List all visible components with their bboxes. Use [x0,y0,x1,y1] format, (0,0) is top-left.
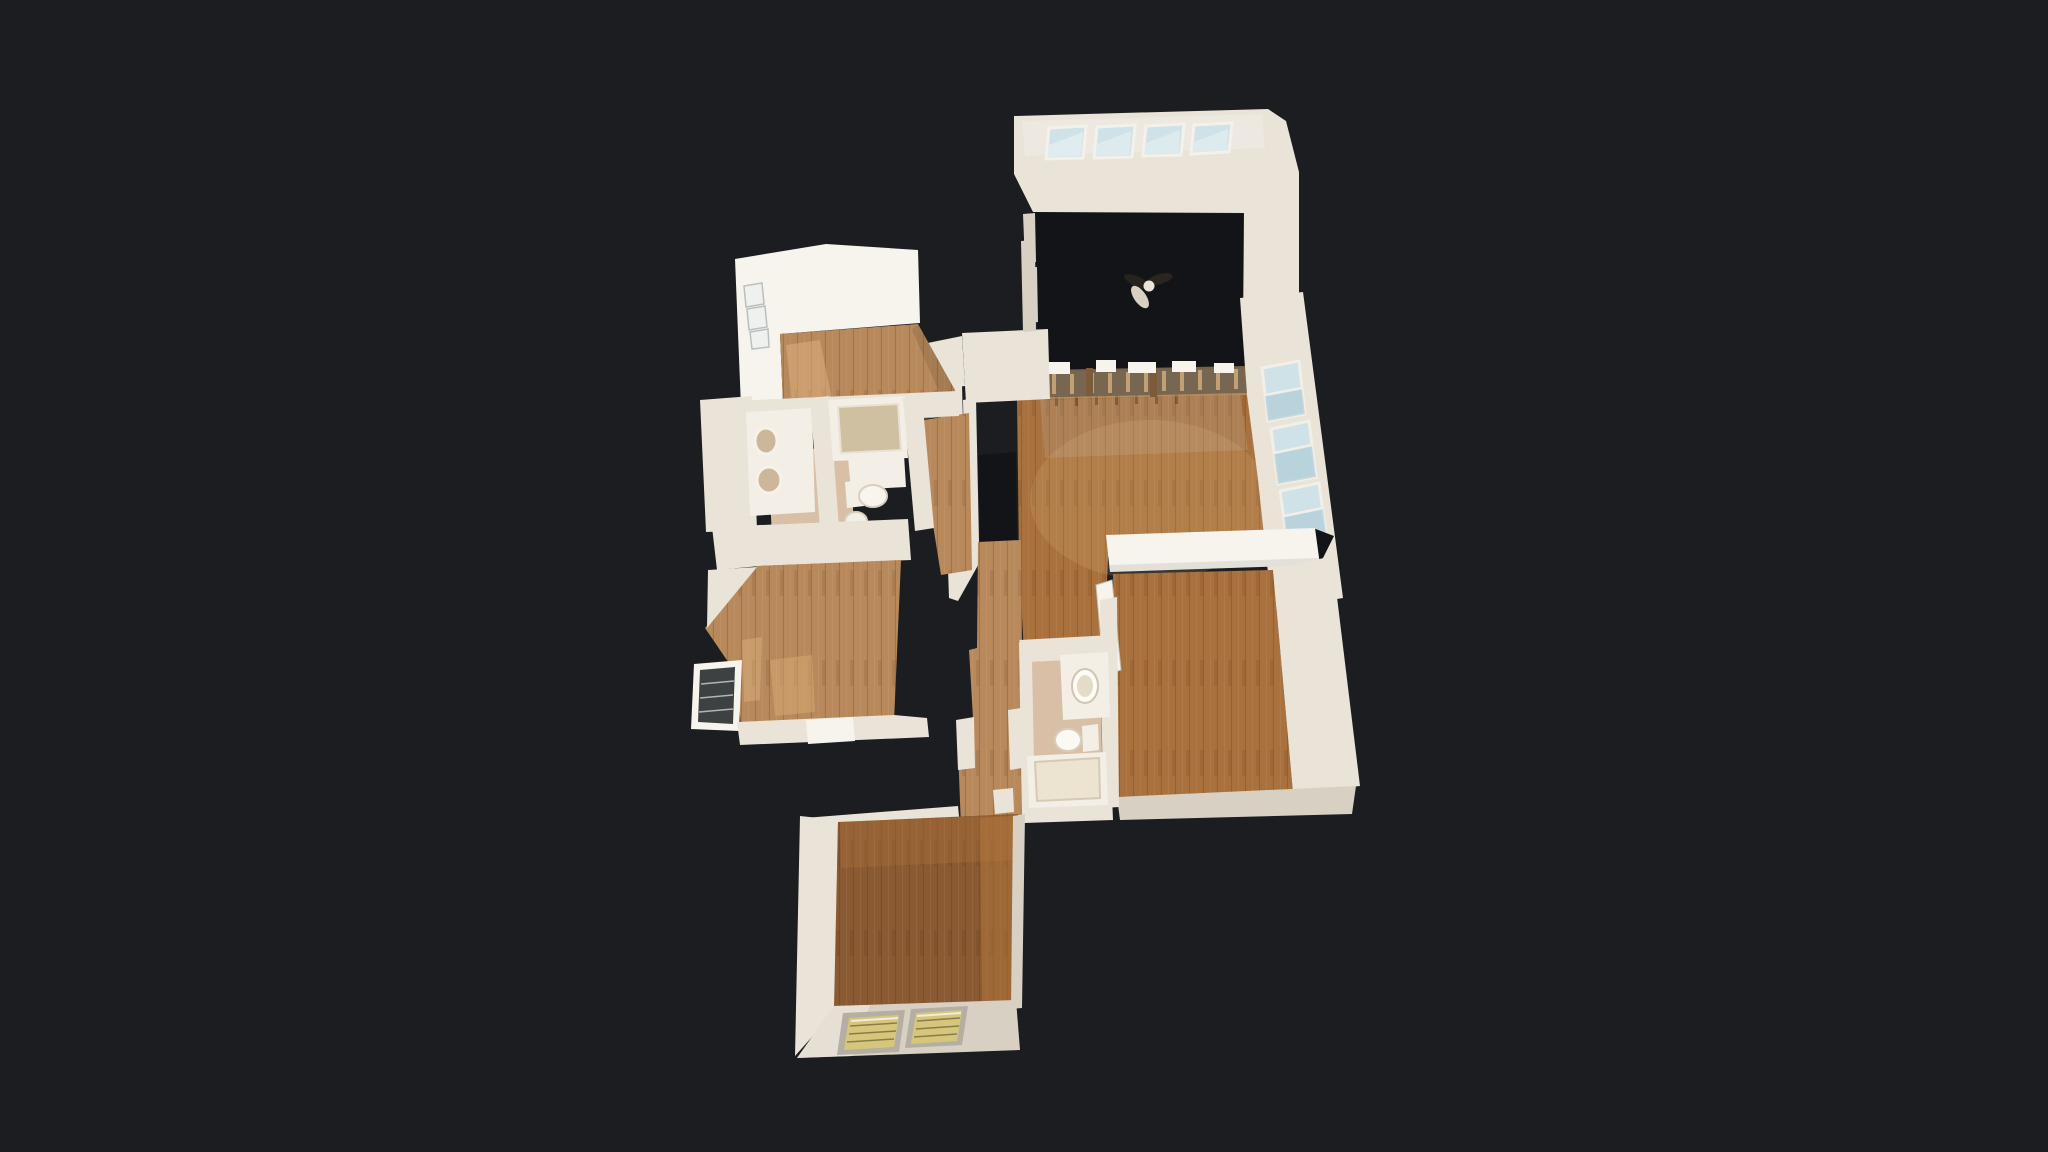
nook-jamb [1008,708,1022,770]
bath2-toilet-tank [1082,724,1099,752]
lower-window-1 [837,1010,905,1055]
bath2-toilet-bowl [1055,729,1081,751]
lower-window-2 [905,1006,968,1048]
lower-jamb [993,788,1014,814]
room-bedroom-middle-left[interactable] [691,519,929,745]
bed2-sunlight-patch [770,655,815,716]
bath1-vanity [746,408,815,516]
closet-strip [1021,240,1036,332]
bath1-toilet-bowl [859,485,887,507]
bath2-sink-basin [1077,675,1093,697]
bed2-door-piece [806,717,855,744]
bed2-sun-streak [742,637,762,702]
nook-jamb [956,717,975,770]
bath1-sink [755,428,777,454]
railing-post [1086,368,1093,396]
master-floor-planks [1113,570,1293,797]
dollhouse-3d-view[interactable] [0,0,2048,1152]
bath1-bathtub-inner [838,404,901,453]
scan-gap-void [978,452,1017,546]
lower-floor-light-top [840,815,1016,868]
closet-panel [962,329,1050,403]
bath1-sink [757,467,781,493]
bed1-window-pane [750,329,769,349]
bed1-window-pane [744,283,764,307]
railing-post [1150,369,1157,397]
bath2-bathtub-inner [1035,758,1100,801]
room-lower[interactable] [795,788,1025,1058]
bed1-window-pane [747,306,767,330]
floorplan-canvas[interactable] [0,0,2048,1152]
